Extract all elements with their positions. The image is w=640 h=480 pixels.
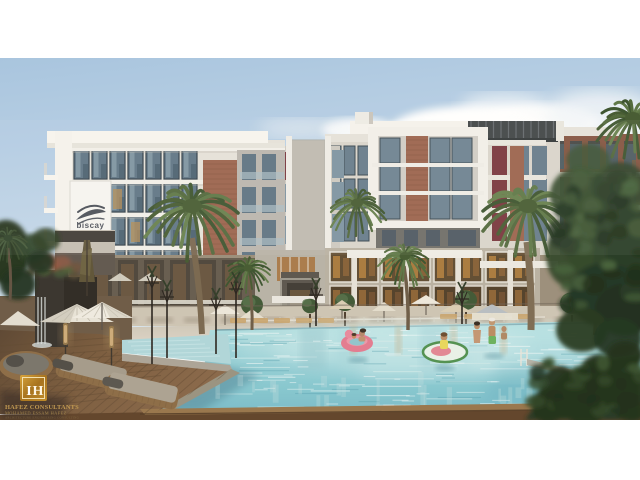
svg-text:I: I	[26, 384, 31, 399]
svg-text:ARCHITECTURE ENGINEERING CONSU: ARCHITECTURE ENGINEERING CONSULTING	[5, 416, 80, 420]
svg-text:H: H	[33, 384, 44, 399]
